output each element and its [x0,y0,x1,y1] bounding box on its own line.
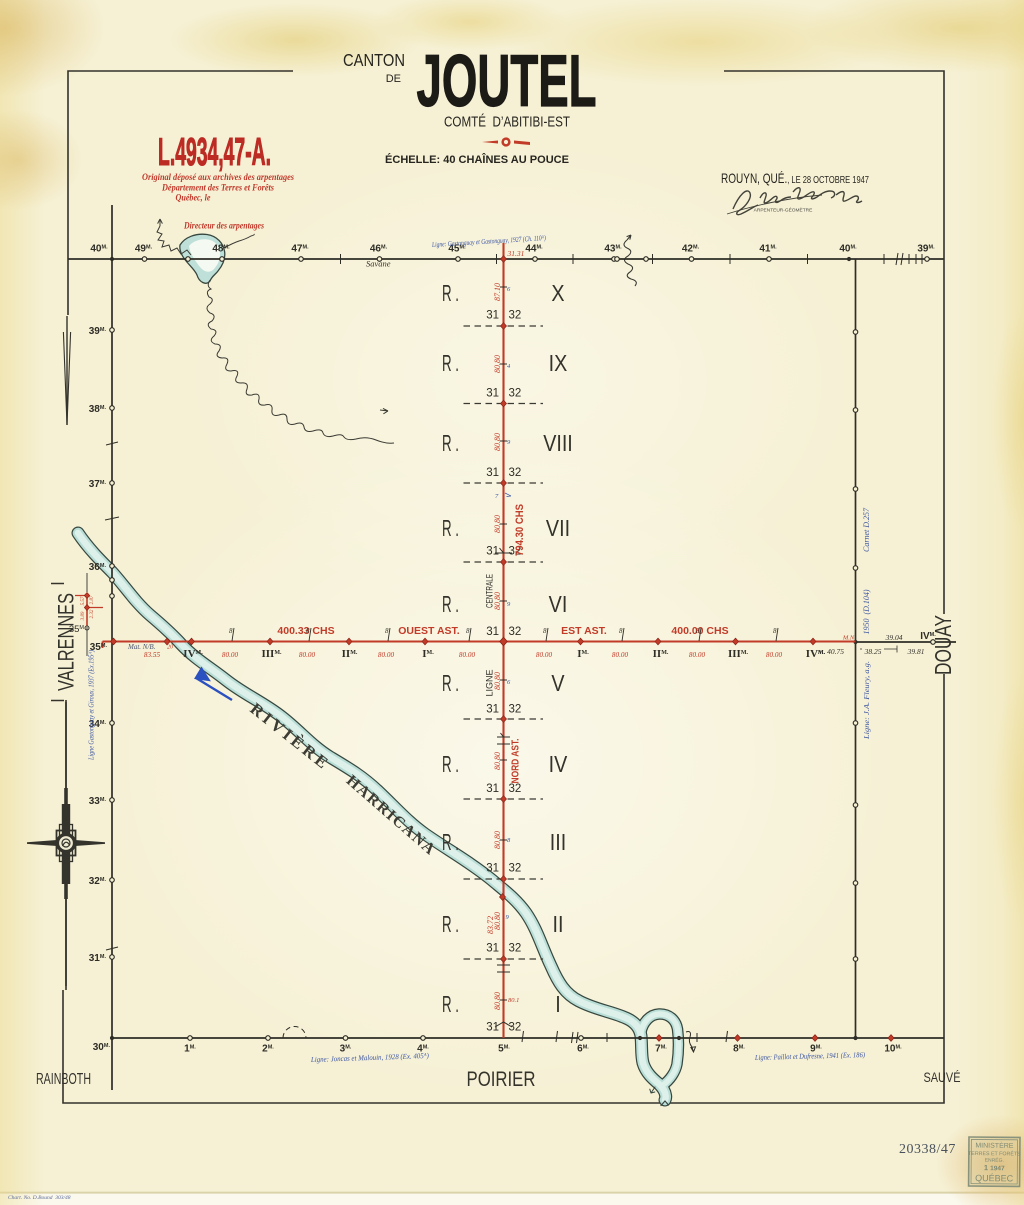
svg-text:2.87: 2.87 [90,595,95,604]
svg-text:ROUYN, QUÉ., LE 28 OCTOBRE 194: ROUYN, QUÉ., LE 28 OCTOBRE 1947 [721,170,869,186]
svg-text:39M.: 39M. [89,326,107,337]
svg-text:X: X [551,279,565,306]
svg-text:47M.: 47M. [291,244,309,255]
svg-text:32: 32 [509,943,522,955]
svg-text:R .: R . [442,751,459,777]
svg-text:794.30 CHS: 794.30 CHS [514,504,526,556]
svg-text:3.89: 3.89 [81,611,86,620]
svg-text:Savane: Savane [366,259,391,269]
svg-text:IIM.: IIM. [653,648,669,660]
svg-text:6: 6 [507,679,511,686]
svg-text:ÉCHELLE: 40 CHAÎNES AU POUCE: ÉCHELLE: 40 CHAÎNES AU POUCE [385,153,569,166]
svg-text:38.25: 38.25 [864,647,882,656]
svg-text:8M.: 8M. [733,1044,745,1055]
svg-text:CANTON: CANTON [343,50,405,70]
svg-text:QUÉBEC: QUÉBEC [975,1173,1014,1183]
svg-text:32: 32 [509,310,522,322]
svg-text:40M.: 40M. [90,244,108,255]
svg-text:8: 8 [696,627,700,635]
svg-text:31: 31 [486,704,499,716]
svg-text:1M.: 1M. [184,1044,196,1055]
svg-text:31: 31 [486,310,499,322]
svg-text:30M.: 30M. [93,1042,111,1053]
svg-text:8: 8 [466,627,470,635]
svg-text:ARPENTEUR-GÉOMÈTRE: ARPENTEUR-GÉOMÈTRE [754,207,813,214]
svg-text:80.00: 80.00 [222,651,239,659]
svg-text:RIVIÈRE: RIVIÈRE [246,699,334,774]
svg-text:EST AST.: EST AST. [561,625,607,637]
svg-text:IM.: IM. [422,648,434,660]
svg-text:R .: R . [442,991,459,1017]
svg-text:31: 31 [486,783,499,795]
svg-text:8: 8 [385,627,389,635]
svg-text:32: 32 [509,1022,522,1034]
svg-text:80.80: 80.80 [493,752,502,770]
svg-text:MINISTÈRE: MINISTÈRE [975,1141,1014,1150]
svg-text:R .: R . [442,591,459,617]
svg-text:II: II [553,910,564,937]
svg-text:20338/47: 20338/47 [899,1142,956,1157]
svg-text:Ligne: Paillot et Dufresne, 19: Ligne: Paillot et Dufresne, 1941 (Ex. 18… [754,1050,865,1062]
svg-text:9: 9 [507,601,511,608]
svg-text:80.80: 80.80 [493,355,502,373]
svg-text:80.00: 80.00 [536,651,553,659]
svg-text:8: 8 [619,627,623,635]
svg-text:9: 9 [507,439,511,446]
svg-text:32: 32 [509,467,522,479]
svg-text:5M.: 5M. [498,1044,510,1055]
svg-text:R .: R . [442,670,459,696]
svg-text:80.80: 80.80 [493,992,502,1010]
svg-text:COMTÉ D’ABITIBI-EST: COMTÉ D’ABITIBI-EST [444,114,570,131]
svg-text:41M.: 41M. [759,244,777,255]
svg-text:4: 4 [507,363,511,370]
svg-text:32M.: 32M. [89,876,107,887]
svg-text:IX: IX [549,349,568,376]
svg-text:R .: R . [442,829,459,855]
svg-text:7M.: 7M. [655,1044,667,1055]
svg-text:49M.: 49M. [135,244,153,255]
svg-text:Ligne: Joncas et Malouin, 1928: Ligne: Joncas et Malouin, 1928 (Ex. 405ᴬ… [310,1051,430,1064]
svg-text:8: 8 [773,627,777,635]
svg-text:8: 8 [543,627,547,635]
svg-text:6: 6 [507,286,511,293]
svg-text:44M.: 44M. [525,244,543,255]
svg-text:IV: IV [549,750,568,777]
svg-text:OUEST AST.: OUEST AST. [398,625,460,637]
svg-text:VII: VII [546,514,570,541]
svg-text:35M: 35M [69,624,85,635]
svg-text:R .: R . [442,280,459,306]
svg-text:31: 31 [486,546,499,558]
svg-text:31: 31 [486,388,499,400]
svg-text:38M.: 38M. [89,404,107,415]
svg-text:m. 40.75: m. 40.75 [818,647,844,656]
svg-text:R .: R . [442,911,459,937]
svg-text:87.10: 87.10 [493,283,502,301]
svg-text:IIIM.: IIIM. [261,648,282,660]
svg-text:M.N: M.N [842,635,855,642]
svg-text:8: 8 [306,627,310,635]
svg-text:L.4934,47-A.: L.4934,47-A. [158,131,271,174]
svg-text:31: 31 [486,863,499,875]
svg-text:80.00: 80.00 [299,651,316,659]
svg-text:39M.: 39M. [917,244,935,255]
svg-text:32: 32 [509,626,522,638]
svg-text:Mat. N/B.: Mat. N/B. [127,643,156,651]
svg-text:1950 (D.104): 1950 (D.104) [862,589,871,634]
svg-text:48M.: 48M. [212,244,230,255]
svg-text:Original déposé aux archives d: Original déposé aux archives des arpenta… [142,172,294,182]
svg-text:80.80: 80.80 [493,433,502,451]
svg-text:VALRENNES: VALRENNES [54,593,79,691]
svg-text:8: 8 [229,627,233,635]
svg-text:V: V [551,669,565,696]
svg-text:JOUTEL: JOUTEL [417,41,597,122]
svg-text:DOUAY: DOUAY [930,615,956,675]
svg-text:80.00: 80.00 [378,651,395,659]
svg-text:R .: R . [442,515,459,541]
svg-text:Carnet D.257: Carnet D.257 [862,507,871,552]
svg-text:80.1: 80.1 [508,997,519,1004]
svg-text:10M.: 10M. [884,1044,902,1055]
svg-text:32: 32 [509,863,522,875]
svg-text:R .: R . [442,430,459,456]
svg-text:Directeur des arpentages: Directeur des arpentages [183,221,264,231]
svg-text:Ligne Gastonguay et Giroux, 19: Ligne Gastonguay et Giroux, 1937 (Ex.195… [88,649,96,760]
svg-text:31: 31 [486,467,499,479]
svg-text:IIIM.: IIIM. [728,648,749,660]
svg-text:R .: R . [442,350,459,376]
svg-text:7: 7 [495,493,499,500]
svg-text:POIRIER: POIRIER [467,1068,536,1091]
svg-text:31.31: 31.31 [507,249,525,258]
svg-text:31M.: 31M. [89,953,107,964]
svg-text:20: 20 [167,645,173,651]
svg-text:33M.: 33M. [89,796,107,807]
svg-text:83.72: 83.72 [486,916,495,934]
svg-text:31: 31 [486,1022,499,1034]
svg-text:I: I [555,990,560,1017]
svg-text:CENTRALE: CENTRALE [485,574,495,608]
svg-text:32: 32 [509,783,522,795]
svg-text:2.32: 2.32 [90,609,95,618]
svg-text:31: 31 [486,943,499,955]
svg-text:Chart. No. D.Bound 303/48: Chart. No. D.Bound 303/48 [8,1194,71,1201]
svg-text:IM.: IM. [577,648,589,660]
svg-text:80.80: 80.80 [493,515,502,533]
svg-text:HARRICANA: HARRICANA [343,772,439,859]
svg-text:NORD AST.: NORD AST. [511,738,522,783]
svg-text:9: 9 [506,914,510,921]
svg-text:39.04: 39.04 [885,633,903,642]
svg-text:DE: DE [386,73,401,85]
svg-text:SAUVÉ: SAUVÉ [924,1070,961,1085]
svg-text:39.81: 39.81 [907,647,925,656]
svg-text:80.00: 80.00 [612,651,629,659]
svg-text:1 1947: 1 1947 [984,1163,1005,1172]
svg-text:6M.: 6M. [577,1044,589,1055]
svg-text:80.00: 80.00 [689,651,706,659]
svg-text:VIII: VIII [543,429,573,456]
svg-text:RAINBOTH: RAINBOTH [36,1071,91,1088]
svg-text:40M.: 40M. [839,244,857,255]
svg-text:32: 32 [509,388,522,400]
svg-text:8: 8 [507,837,511,844]
svg-text:80.00: 80.00 [459,651,476,659]
svg-text:46M.: 46M. [370,244,388,255]
svg-text:80.00: 80.00 [766,651,783,659]
svg-text:83.55: 83.55 [144,651,161,659]
svg-text:5.57: 5.57 [81,596,86,605]
svg-text:Québec, le: Québec, le [176,193,211,203]
svg-text:37M.: 37M. [89,479,107,490]
svg-text:42M.: 42M. [682,244,700,255]
svg-text:Ligne: J.A. Fleury, a.g.: Ligne: J.A. Fleury, a.g. [862,661,871,740]
svg-text:32: 32 [509,704,522,716]
svg-text:80.80: 80.80 [493,831,502,849]
svg-text:31: 31 [486,626,499,638]
svg-text:IIM.: IIM. [342,648,358,660]
svg-text:III: III [550,828,566,855]
svg-text:LIGNE: LIGNE [485,670,495,697]
svg-text:Département des Terres et Forê: Département des Terres et Forêts [161,183,274,193]
svg-text:2M.: 2M. [262,1044,274,1055]
svg-text:43M.: 43M. [604,244,622,255]
svg-text:VI: VI [549,590,568,617]
